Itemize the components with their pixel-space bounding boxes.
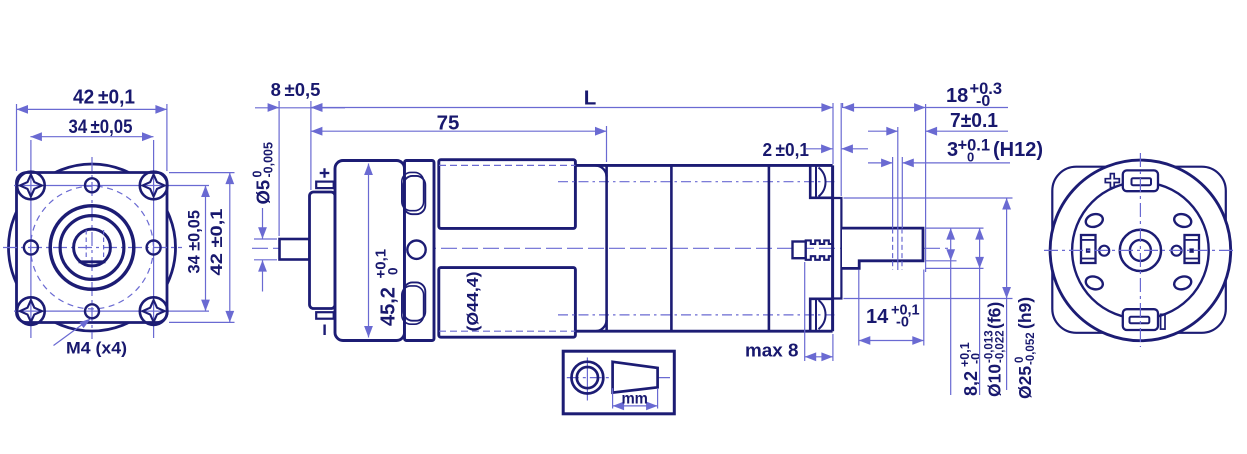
svg-text:Ø10: Ø10	[985, 364, 1005, 397]
svg-text:Ø5: Ø5	[253, 180, 274, 205]
svg-text:(h9): (h9)	[1015, 297, 1035, 329]
svg-text:-0,005: -0,005	[262, 142, 276, 177]
svg-text:-0,052: -0,052	[1025, 332, 1037, 365]
svg-text:3: 3	[947, 139, 958, 161]
svg-text:-0: -0	[896, 315, 909, 331]
svg-text:8 ±0,5: 8 ±0,5	[271, 79, 321, 100]
svg-text:0: 0	[967, 150, 974, 165]
svg-text:8,2: 8,2	[961, 371, 981, 396]
svg-text:7±0.1: 7±0.1	[950, 110, 998, 132]
svg-text:42 ±0,1: 42 ±0,1	[207, 209, 226, 276]
svg-text:14: 14	[866, 306, 889, 328]
svg-text:(f6): (f6)	[985, 302, 1005, 329]
svg-text:45,2: 45,2	[378, 287, 400, 326]
svg-text:M4 (x4): M4 (x4)	[66, 340, 127, 358]
svg-text:42 ±0,1: 42 ±0,1	[73, 86, 135, 109]
svg-text:-0,022: -0,022	[995, 330, 1007, 363]
svg-text:(Ø44,4): (Ø44,4)	[465, 272, 482, 332]
svg-text:34 ±0,05: 34 ±0,05	[185, 210, 204, 274]
svg-text:mm: mm	[621, 391, 648, 408]
svg-text:max 8: max 8	[745, 340, 799, 361]
svg-text:0: 0	[386, 267, 401, 275]
svg-text:2 ±0,1: 2 ±0,1	[763, 139, 810, 160]
svg-text:L: L	[584, 87, 597, 110]
svg-text:-0: -0	[976, 93, 990, 110]
svg-text:75: 75	[437, 112, 460, 135]
svg-text:Ø25: Ø25	[1015, 366, 1035, 399]
svg-text:18: 18	[946, 85, 968, 107]
svg-text:34 ±0,05: 34 ±0,05	[69, 117, 133, 138]
svg-text:(H12): (H12)	[993, 139, 1043, 161]
svg-text:-0: -0	[969, 353, 983, 364]
